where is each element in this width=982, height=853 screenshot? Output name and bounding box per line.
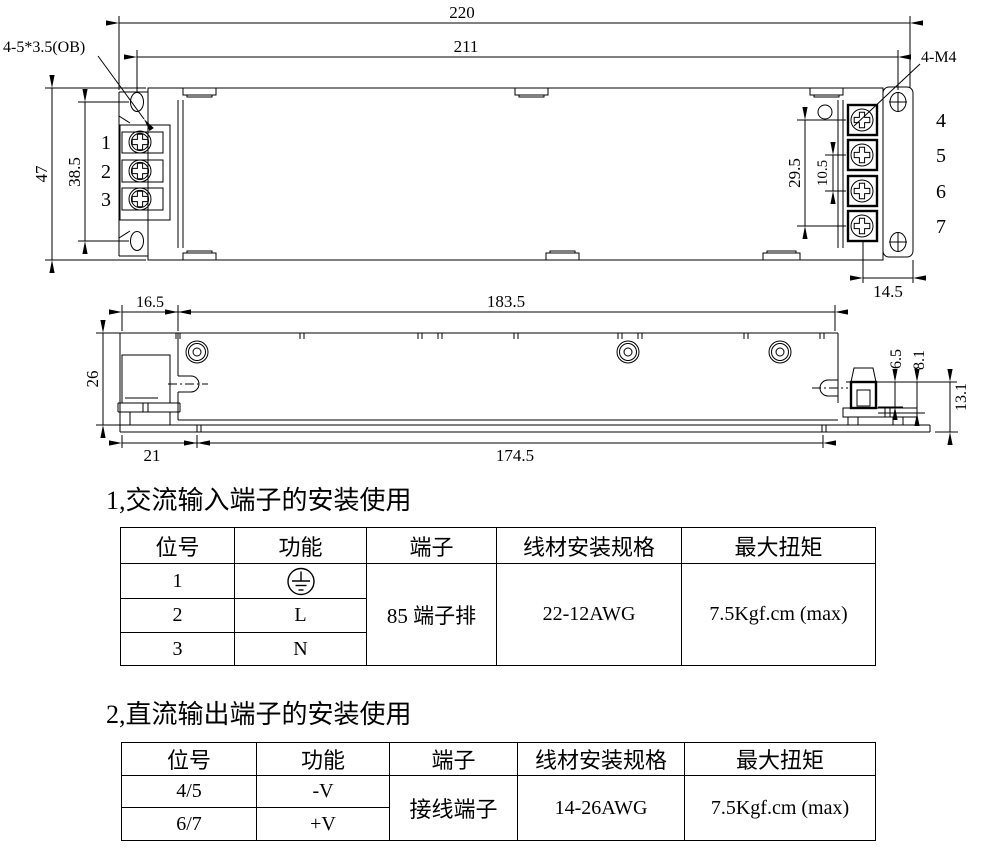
cell-position-1: 1 bbox=[121, 564, 235, 599]
leader-mounting-holes: 4-5*3.5(OB) bbox=[3, 39, 144, 119]
screw-icon bbox=[186, 341, 208, 363]
svg-text:4-M4: 4-M4 bbox=[921, 49, 957, 66]
dim-183-5: 183.5 bbox=[178, 292, 835, 331]
svg-text:6.5: 6.5 bbox=[888, 349, 905, 369]
col-header-position: 位号 bbox=[121, 528, 235, 564]
ac-terminal-block bbox=[120, 125, 170, 220]
side-view: 16.5 183.5 26 21 174.5 bbox=[83, 292, 970, 465]
screw-icon bbox=[129, 188, 151, 210]
mounting-hole-bottom-left bbox=[131, 232, 144, 251]
table-row: 4/5 -V 接线端子 14-26AWG 7.5Kgf.cm (max) bbox=[122, 776, 876, 808]
side-top-ticks bbox=[176, 333, 824, 339]
side-dc-terminal bbox=[843, 368, 917, 425]
svg-text:4-5*3.5(OB): 4-5*3.5(OB) bbox=[3, 39, 85, 56]
cell-position-2: 2 bbox=[121, 599, 235, 633]
table-row: 1 85 端子排 22-12AWG 7.5Kgf.cm (max) bbox=[121, 564, 876, 599]
dim-220: 220 bbox=[119, 3, 910, 90]
terminal-label-2: 2 bbox=[101, 161, 111, 183]
col-header-wire-spec: 线材安装规格 bbox=[497, 528, 682, 564]
screw-icon bbox=[769, 341, 791, 363]
svg-text:10.5: 10.5 bbox=[815, 160, 831, 186]
cell-wire-spec: 14-26AWG bbox=[518, 776, 685, 841]
side-ac-housing bbox=[118, 355, 180, 425]
cell-position-45: 4/5 bbox=[122, 776, 257, 808]
svg-text:21: 21 bbox=[144, 446, 161, 465]
dim-10-5: 10.5 bbox=[815, 155, 846, 191]
section-2-heading: 2,直流输出端子的安装使用 bbox=[106, 694, 412, 731]
dim-6-5: 6.5 bbox=[846, 349, 957, 407]
protective-earth-icon bbox=[285, 566, 317, 597]
svg-text:174.5: 174.5 bbox=[496, 446, 534, 465]
terminal-label-6: 6 bbox=[936, 181, 946, 203]
screw-icon bbox=[617, 341, 639, 363]
terminal-label-3: 3 bbox=[101, 189, 111, 211]
mechanical-drawing: 1 2 3 4 5 6 7 2 bbox=[0, 0, 982, 470]
table-header-row: 位号 功能 端子 线材安装规格 最大扭矩 bbox=[122, 743, 876, 776]
right-mounting-flange bbox=[883, 87, 913, 257]
chassis-outline bbox=[148, 88, 883, 260]
section-1-heading: 1,交流输入端子的安装使用 bbox=[106, 480, 412, 517]
col-header-position: 位号 bbox=[122, 743, 257, 776]
screw-icon bbox=[129, 160, 151, 182]
screw-icon bbox=[851, 109, 873, 131]
terminal-label-1: 1 bbox=[101, 132, 111, 154]
col-header-function: 功能 bbox=[235, 528, 367, 564]
cell-function-minus-v: -V bbox=[257, 776, 390, 808]
cell-terminal-type: 接线端子 bbox=[390, 776, 518, 841]
svg-text:26: 26 bbox=[83, 371, 102, 388]
svg-text:183.5: 183.5 bbox=[487, 292, 525, 311]
indicator-hole bbox=[818, 105, 832, 119]
cell-position-67: 6/7 bbox=[122, 808, 257, 841]
dim-21: 21 bbox=[122, 435, 197, 465]
col-header-terminal: 端子 bbox=[367, 528, 497, 564]
col-header-max-torque: 最大扭矩 bbox=[682, 528, 876, 564]
dim-14-5: 14.5 bbox=[863, 240, 913, 301]
col-header-wire-spec: 线材安装规格 bbox=[518, 743, 685, 776]
svg-text:211: 211 bbox=[454, 37, 479, 56]
dim-174-5: 174.5 bbox=[197, 435, 823, 465]
screw-icon bbox=[851, 144, 873, 166]
bottom-edge-tabs bbox=[183, 251, 800, 260]
col-header-terminal: 端子 bbox=[390, 743, 518, 776]
cell-max-torque: 7.5Kgf.cm (max) bbox=[685, 776, 876, 841]
cell-wire-spec: 22-12AWG bbox=[497, 564, 682, 666]
cell-function-N: N bbox=[235, 633, 367, 666]
svg-text:29.5: 29.5 bbox=[785, 158, 804, 188]
svg-text:14.5: 14.5 bbox=[873, 282, 903, 301]
dim-13-1: 13.1 bbox=[935, 382, 970, 432]
col-header-function: 功能 bbox=[257, 743, 390, 776]
terminal-label-7: 7 bbox=[936, 216, 946, 238]
top-edge-tabs bbox=[183, 88, 843, 97]
screw-icon bbox=[851, 215, 873, 237]
svg-text:13.1: 13.1 bbox=[953, 383, 970, 411]
terminal-label-4: 4 bbox=[936, 110, 946, 132]
cell-function-plus-v: +V bbox=[257, 808, 390, 841]
screw-icon bbox=[129, 131, 151, 153]
svg-text:8.1: 8.1 bbox=[911, 350, 928, 370]
ac-input-terminal-table: 位号 功能 端子 线材安装规格 最大扭矩 1 85 端子排 22-12AWG 7… bbox=[120, 527, 876, 666]
dim-211: 211 bbox=[137, 37, 898, 92]
dc-output-terminal-table: 位号 功能 端子 线材安装规格 最大扭矩 4/5 -V 接线端子 14-26AW… bbox=[121, 742, 876, 841]
cell-function-ground bbox=[235, 564, 367, 599]
cell-terminal-type: 85 端子排 bbox=[367, 564, 497, 666]
table-header-row: 位号 功能 端子 线材安装规格 最大扭矩 bbox=[121, 528, 876, 564]
side-profile-outline bbox=[110, 333, 930, 432]
screw-icon bbox=[851, 180, 873, 202]
dim-16-5: 16.5 bbox=[122, 294, 178, 331]
svg-text:47: 47 bbox=[32, 165, 51, 183]
cell-function-L: L bbox=[235, 599, 367, 633]
top-view: 1 2 3 4 5 6 7 2 bbox=[3, 3, 957, 301]
cell-max-torque: 7.5Kgf.cm (max) bbox=[682, 564, 876, 666]
svg-text:38.5: 38.5 bbox=[65, 157, 84, 187]
datasheet-page: 1 2 3 4 5 6 7 2 bbox=[0, 0, 982, 853]
svg-text:16.5: 16.5 bbox=[136, 294, 164, 311]
svg-text:220: 220 bbox=[449, 3, 475, 22]
cell-position-3: 3 bbox=[121, 633, 235, 666]
col-header-max-torque: 最大扭矩 bbox=[685, 743, 876, 776]
terminal-label-5: 5 bbox=[936, 145, 946, 167]
dim-26: 26 bbox=[83, 333, 117, 425]
